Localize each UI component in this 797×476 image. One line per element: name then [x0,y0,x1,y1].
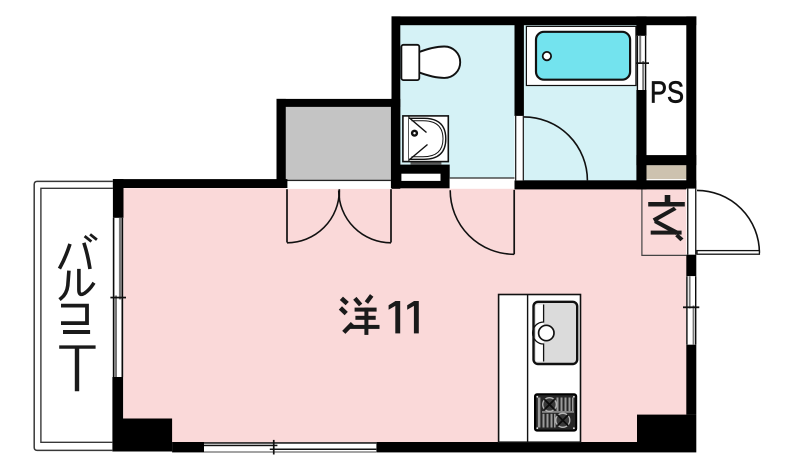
svg-text:PS: PS [650,75,684,109]
